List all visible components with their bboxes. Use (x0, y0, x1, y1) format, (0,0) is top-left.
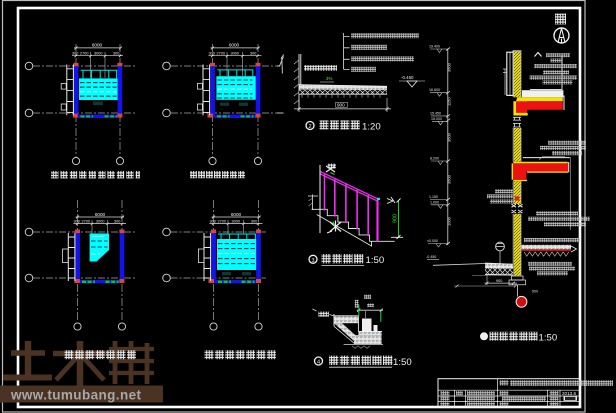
svg-text:3%: 3% (326, 76, 332, 81)
svg-text:3000: 3000 (94, 52, 102, 56)
svg-text:1.000: 1.000 (430, 200, 439, 204)
svg-text:8.200: 8.200 (430, 157, 439, 161)
svg-text:500: 500 (532, 290, 538, 294)
svg-text:2700: 2700 (80, 52, 88, 56)
svg-text:±0.000: ±0.000 (427, 239, 438, 243)
svg-text:1.150: 1.150 (429, 195, 438, 199)
svg-text:1:50: 1:50 (366, 255, 385, 266)
svg-text:300: 300 (72, 52, 78, 56)
svg-text:300: 300 (74, 219, 80, 223)
svg-text:300: 300 (114, 219, 120, 223)
svg-text:3: 3 (311, 258, 314, 264)
svg-text:1:50: 1:50 (539, 333, 558, 344)
svg-text:900: 900 (337, 103, 345, 108)
svg-text:2013.6: 2013.6 (562, 391, 576, 396)
svg-text:16.600: 16.600 (429, 88, 440, 92)
svg-text:2700: 2700 (218, 219, 226, 223)
svg-text:6000: 6000 (229, 43, 240, 48)
svg-text:1:20: 1:20 (362, 121, 381, 132)
svg-text:6000: 6000 (92, 43, 103, 48)
svg-text:900: 900 (393, 214, 399, 223)
svg-text:15.450: 15.450 (430, 111, 441, 115)
svg-text:900: 900 (496, 279, 502, 283)
svg-text:300: 300 (113, 52, 119, 56)
svg-text:2700: 2700 (217, 52, 225, 56)
svg-text:300: 300 (251, 219, 257, 223)
svg-text:3600: 3600 (447, 132, 452, 142)
svg-text:4: 4 (317, 360, 320, 366)
svg-text:www.tumubang.net: www.tumubang.net (10, 388, 141, 403)
svg-text:3000: 3000 (232, 219, 240, 223)
svg-text:19.400: 19.400 (429, 45, 440, 49)
svg-text:300: 300 (209, 52, 215, 56)
svg-text:3000: 3000 (231, 52, 239, 56)
svg-text:3600: 3600 (447, 174, 452, 184)
svg-text:-0.450: -0.450 (426, 255, 436, 259)
svg-text:2700: 2700 (82, 219, 90, 223)
svg-text:300: 300 (210, 219, 216, 223)
svg-text:3000: 3000 (96, 219, 104, 223)
svg-text:-0.450: -0.450 (401, 75, 414, 80)
svg-text:6000: 6000 (231, 212, 242, 217)
svg-text:2: 2 (308, 124, 311, 130)
svg-text:6000: 6000 (95, 212, 106, 217)
svg-text:15.000: 15.000 (431, 117, 442, 121)
svg-text:1000: 1000 (447, 216, 452, 226)
svg-text:1150: 1150 (447, 97, 452, 106)
svg-text:1:50: 1:50 (393, 357, 412, 368)
svg-text:3600: 3600 (447, 62, 452, 72)
svg-text:300: 300 (250, 52, 256, 56)
